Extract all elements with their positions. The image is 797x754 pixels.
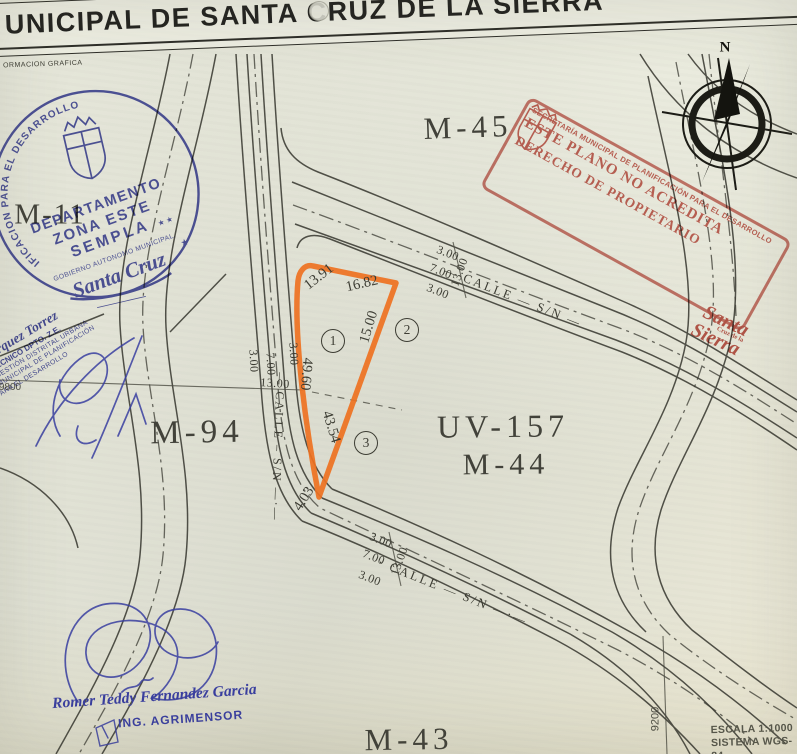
- technician-signature: [36, 336, 146, 458]
- surveyor-emblem: [96, 720, 118, 746]
- scanned-cadastral-plan: UNICIPAL DE SANTA CRUZ DE LA SIERRA ORMA…: [0, 0, 797, 754]
- hole-punch-mark: [309, 1, 329, 21]
- signatures-overlay: [0, 0, 797, 754]
